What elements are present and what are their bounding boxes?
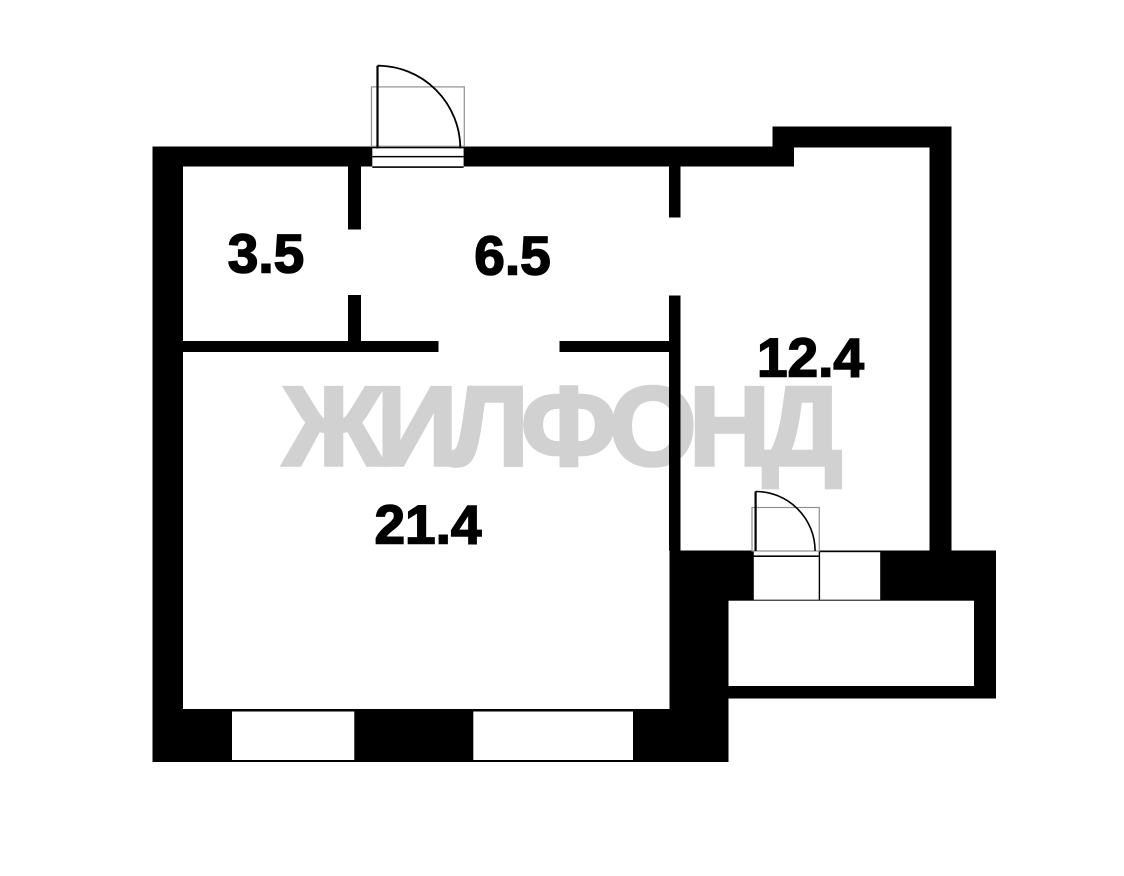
svg-text:21.4: 21.4 — [374, 494, 481, 556]
svg-text:12.4: 12.4 — [757, 327, 864, 389]
svg-text:6.5: 6.5 — [474, 225, 550, 287]
svg-text:3.5: 3.5 — [228, 223, 304, 285]
